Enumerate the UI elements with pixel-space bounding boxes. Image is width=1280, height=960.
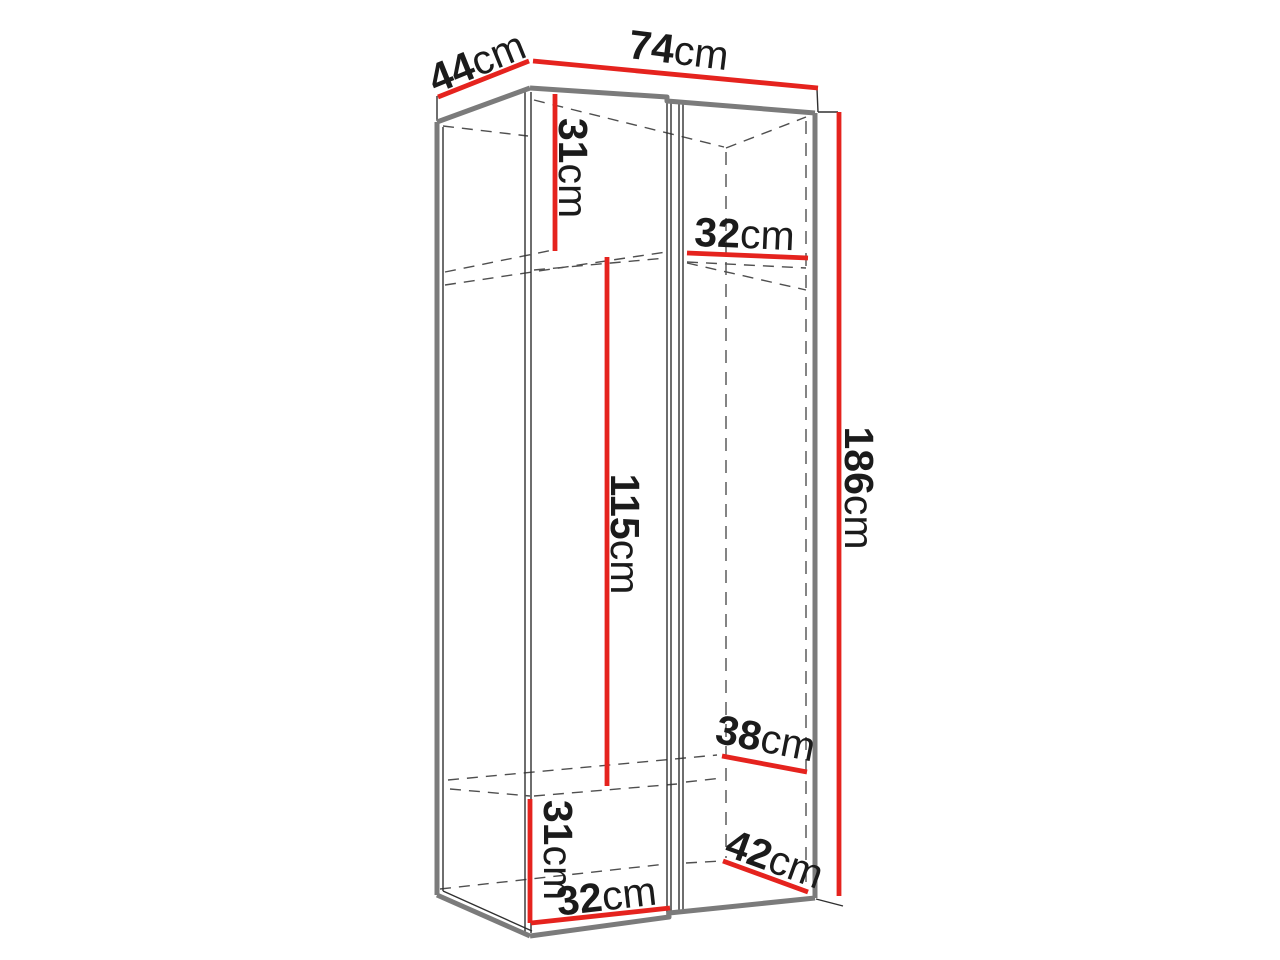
dim-top-shelf-width-label: 32cm [694,209,796,259]
dim-overall-height-unit: cm [836,495,882,550]
left-panel-inner-bottom [443,891,532,931]
dim-top-section-height-value: 31 [550,118,596,164]
dim-top-shelf-width-value: 32 [694,209,742,257]
dim-bottom-shelf-width-value: 32 [554,874,605,925]
ext-top-right-vertical [817,89,818,112]
hidden-top-right-edge [726,117,806,148]
ext-bottom-right [816,899,843,906]
dim-bottom-shelf-depth-label: 38cm [712,706,819,770]
hidden-lower-shelf-d [686,778,722,782]
hidden-lower-shelf-a [448,755,717,780]
dim-bottom-section-height-value: 31 [535,800,581,846]
dim-depth-label: 44cm [422,22,532,102]
dim-bottom-shelf-width-unit: cm [599,868,659,920]
edge-bottom-left-slant [437,895,530,936]
dim-width-unit: cm [671,27,731,79]
dim-top-shelf-width-unit: cm [739,211,796,259]
hidden-upper-shelf-c [534,258,666,270]
dim-middle-section-height-value: 115 [602,474,648,540]
diagram-canvas: 44cm 74cm 31cm 32cm 115cm 186cm 38cm 31c… [0,0,1280,960]
hidden-bottom-panel-b [686,861,721,863]
dim-overall-height-value: 186 [836,426,882,494]
hidden-upper-shelf-a [445,250,553,272]
hidden-upper-shelf-d [687,262,806,268]
dim-top-section-height-unit: cm [550,163,596,218]
dim-middle-section-height-label: 115cm [602,474,648,595]
hidden-top-left-edge [443,126,528,136]
dim-width-value: 74 [626,21,677,72]
dim-overall-height-label: 186cm [836,426,882,549]
wardrobe-dimension-diagram: 44cm 74cm 31cm 32cm 115cm 186cm 38cm 31c… [0,0,1280,960]
dim-middle-section-height-unit: cm [602,540,648,595]
hidden-lower-shelf-b [450,789,530,796]
dim-top-section-height-label: 31cm [550,118,596,218]
